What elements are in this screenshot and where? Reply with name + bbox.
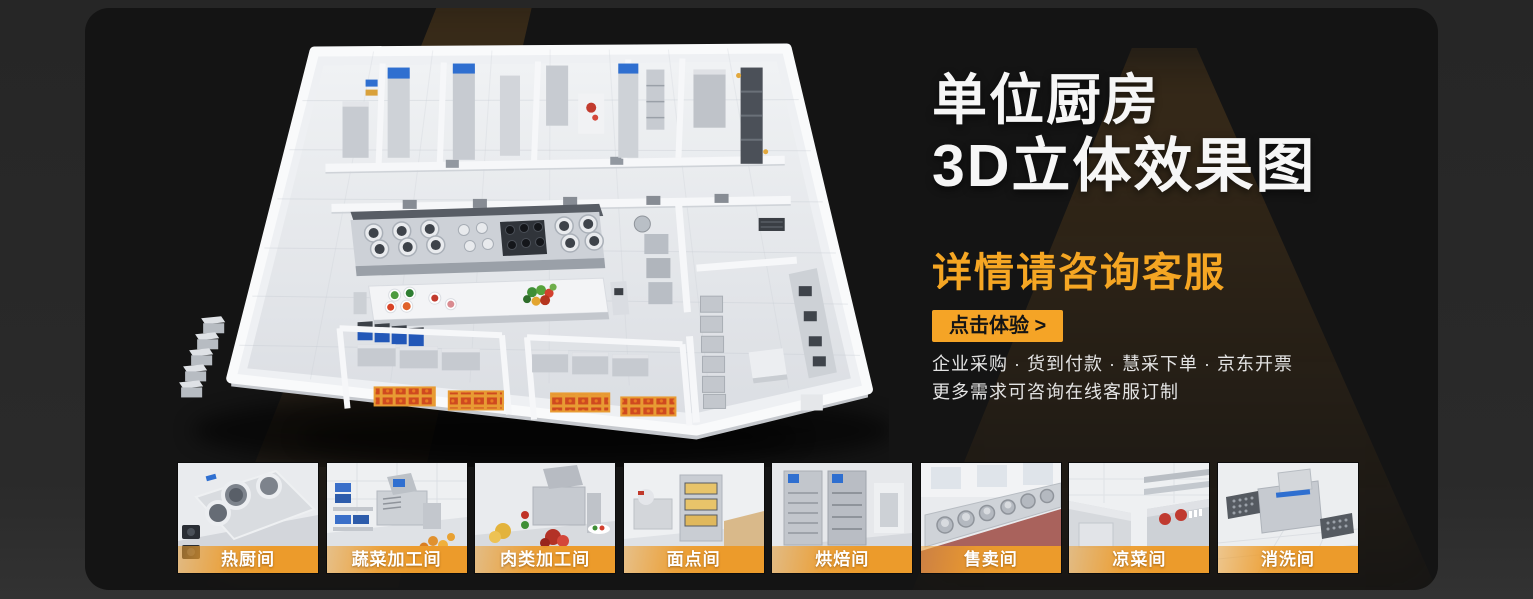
thumbnail-cold-dish-room[interactable]: 凉菜间	[1069, 463, 1209, 573]
thumbnail-label: 烘焙间	[772, 546, 912, 573]
thumbnail-label: 消洗间	[1218, 546, 1358, 573]
thumbnail-label: 售卖间	[921, 546, 1061, 573]
thumbnail-washing-room[interactable]: 消洗间	[1218, 463, 1358, 573]
hero-title-line2: 3D立体效果图	[932, 132, 1316, 200]
room-thumbnail-gallery: 热厨间 蔬菜加工间	[178, 463, 1358, 573]
banner-panel: 单位厨房 3D立体效果图 详情请咨询客服 点击体验 > 企业采购 · 货到付款 …	[85, 8, 1438, 590]
thumbnail-pastry-room[interactable]: 面点间	[624, 463, 764, 573]
hero-subtitle: 详情请咨询客服	[932, 248, 1226, 298]
thumbnail-label: 凉菜间	[1069, 546, 1209, 573]
bullet-line-2: 更多需求可咨询在线客服订制	[932, 378, 1293, 406]
bullet-line-1: 企业采购 · 货到付款 · 慧采下单 · 京东开票	[932, 350, 1293, 378]
cta-button[interactable]: 点击体验 >	[932, 310, 1063, 342]
thumbnail-meat-processing[interactable]: 肉类加工间	[475, 463, 615, 573]
thumbnail-vegetable-processing[interactable]: 蔬菜加工间	[327, 463, 467, 573]
thumbnail-label: 面点间	[624, 546, 764, 573]
thumbnail-label: 肉类加工间	[475, 546, 615, 573]
thumbnail-hot-kitchen[interactable]: 热厨间	[178, 463, 318, 573]
banner-stage: 单位厨房 3D立体效果图 详情请咨询客服 点击体验 > 企业采购 · 货到付款 …	[0, 0, 1533, 599]
thumbnail-selling-room[interactable]: 售卖间	[921, 463, 1061, 573]
hero-title-line1: 单位厨房	[932, 68, 1160, 132]
floorplan-3d-render	[147, 8, 889, 467]
thumbnail-label: 热厨间	[178, 546, 318, 573]
floorplan-3d-image	[147, 8, 889, 467]
thumbnail-label: 蔬菜加工间	[327, 546, 467, 573]
hero-bullets: 企业采购 · 货到付款 · 慧采下单 · 京东开票 更多需求可咨询在线客服订制	[932, 350, 1293, 406]
thumbnail-baking-room[interactable]: 烘焙间	[772, 463, 912, 573]
